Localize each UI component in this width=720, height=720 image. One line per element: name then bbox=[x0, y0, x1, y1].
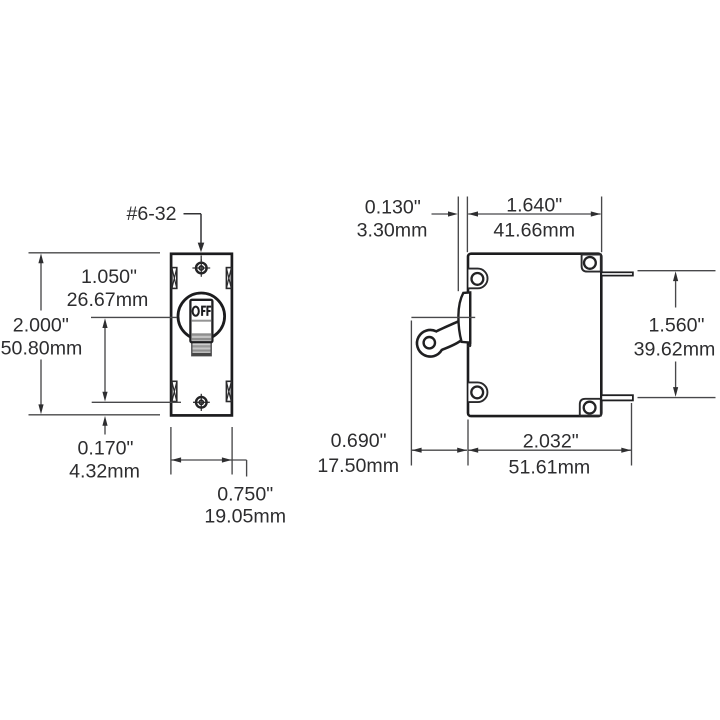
svg-text:1.050": 1.050" bbox=[81, 266, 137, 288]
svg-text:#6-32: #6-32 bbox=[126, 203, 176, 225]
svg-text:17.50mm: 17.50mm bbox=[317, 455, 399, 477]
svg-text:2.000": 2.000" bbox=[13, 314, 69, 336]
svg-text:0.750": 0.750" bbox=[217, 483, 273, 505]
svg-text:26.67mm: 26.67mm bbox=[67, 289, 149, 311]
svg-text:0.130": 0.130" bbox=[365, 197, 421, 219]
svg-text:2.032": 2.032" bbox=[523, 430, 579, 452]
svg-text:51.61mm: 51.61mm bbox=[509, 457, 591, 479]
svg-text:19.05mm: 19.05mm bbox=[204, 505, 286, 527]
svg-text:0.170": 0.170" bbox=[78, 438, 134, 460]
svg-text:39.62mm: 39.62mm bbox=[634, 338, 716, 360]
svg-text:1.640": 1.640" bbox=[506, 194, 562, 216]
svg-text:0.690": 0.690" bbox=[331, 430, 387, 452]
svg-text:41.66mm: 41.66mm bbox=[493, 219, 575, 241]
svg-text:4.32mm: 4.32mm bbox=[69, 461, 140, 483]
svg-text:3.30mm: 3.30mm bbox=[357, 220, 428, 242]
svg-text:50.80mm: 50.80mm bbox=[1, 337, 83, 359]
svg-text:1.560": 1.560" bbox=[649, 315, 705, 337]
